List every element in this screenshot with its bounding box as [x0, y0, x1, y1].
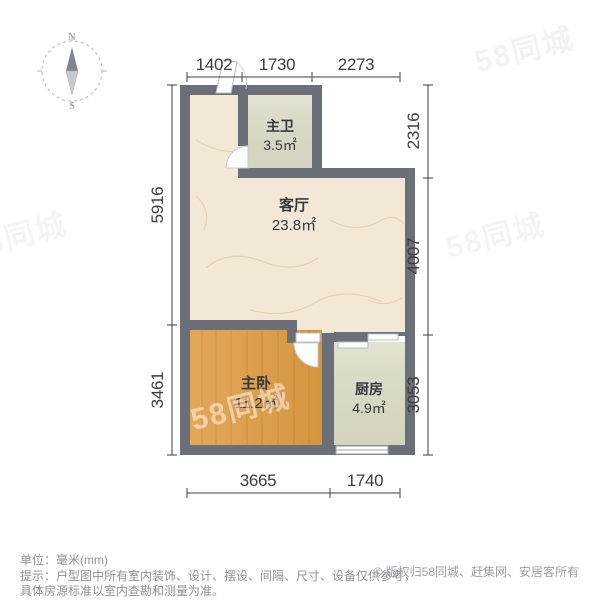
floorplan-page: N S: [0, 0, 600, 600]
wall-kitchen-top: [334, 332, 368, 342]
dim-top-2: 1730: [259, 55, 296, 74]
unit-note: 单位：毫米(mm): [20, 551, 108, 568]
copyright-notice: © 版权归58同城、赶集网、安居客所有: [373, 563, 579, 580]
disclaimer-line-2: 具体房源标准以室内查勘和测量为准。: [20, 582, 224, 599]
wall-bathroom-right: [312, 85, 322, 178]
dim-bottom-1: 3665: [240, 471, 277, 490]
dim-left-1: 5916: [148, 187, 167, 224]
dim-top-3: 2273: [338, 55, 375, 74]
living-room-name-label: 客厅: [278, 196, 309, 214]
wall-top: [180, 85, 322, 95]
living-room-area-label: 23.8㎡: [272, 217, 316, 234]
kitchen-name-label: 厨房: [355, 381, 383, 397]
compass-north-label: N: [68, 31, 76, 43]
compass-south-label: S: [69, 100, 75, 112]
dim-bottom-2: 1740: [347, 471, 384, 490]
wall-bedroom-top: [180, 320, 297, 330]
dim-right-3: 3053: [404, 377, 423, 414]
watermark-text: 58同城: [0, 209, 71, 266]
dim-right-2: 4007: [404, 238, 423, 275]
bathroom-name-label: 主卫: [266, 118, 294, 134]
wall-bedroom-kitchen-divider: [322, 333, 334, 455]
wall-bathroom-left: [238, 95, 248, 146]
dim-top-1: 1402: [196, 55, 233, 74]
floorplan-canvas: N S: [0, 0, 600, 600]
wall-notch-horizontal: [238, 168, 415, 178]
watermark-text: 58同城: [443, 209, 549, 266]
watermark-text: 58同城: [472, 23, 578, 80]
compass-icon: N S: [37, 31, 107, 112]
kitchen-area-label: 4.9㎡: [352, 400, 385, 416]
dim-right-1: 2316: [404, 113, 423, 150]
dim-left-2: 3461: [148, 372, 167, 409]
wall-left: [180, 85, 190, 455]
bathroom-area-label: 3.5㎡: [263, 137, 296, 153]
kitchen-window-icon: [336, 446, 388, 454]
